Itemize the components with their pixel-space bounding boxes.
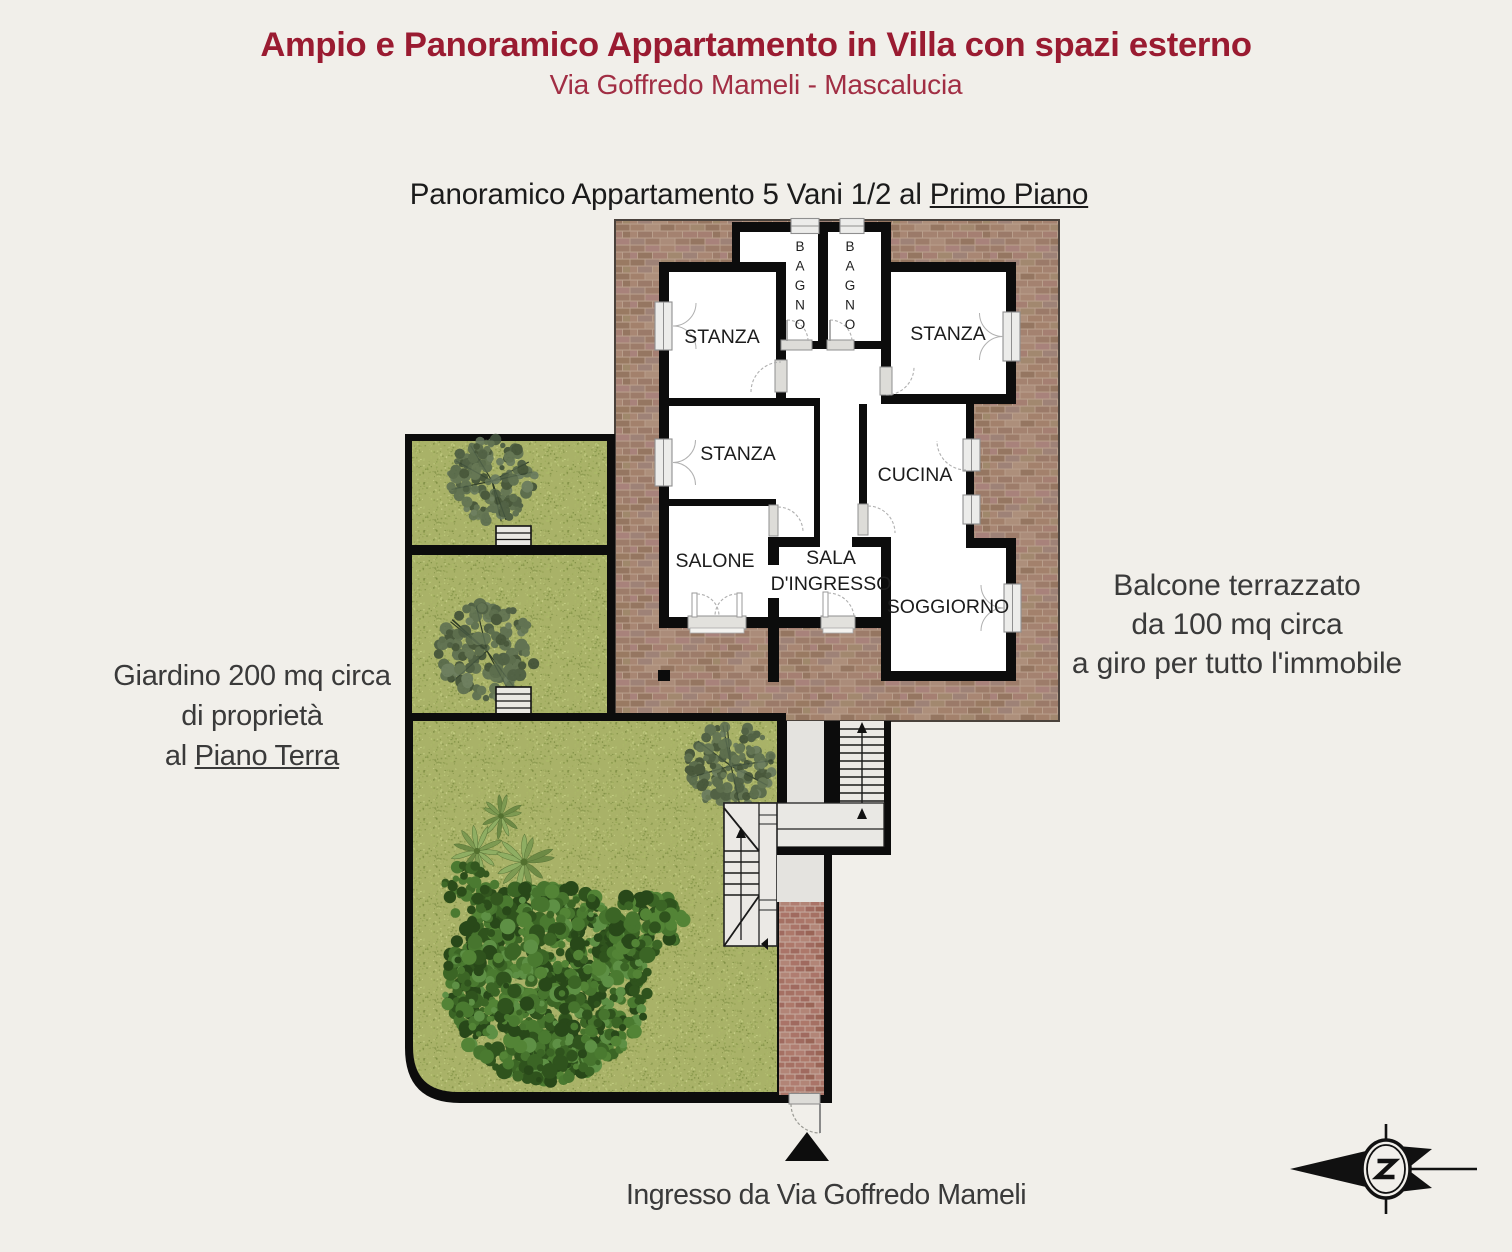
svg-text:STANZA: STANZA (684, 326, 759, 348)
svg-text:A: A (795, 259, 804, 274)
svg-text:SALONE: SALONE (675, 550, 754, 572)
svg-text:G: G (795, 278, 806, 293)
svg-text:STANZA: STANZA (700, 443, 775, 465)
svg-text:STANZA: STANZA (910, 323, 985, 345)
svg-text:O: O (845, 317, 856, 332)
svg-text:A: A (845, 259, 854, 274)
svg-text:CUCINA: CUCINA (878, 464, 953, 486)
svg-text:D'INGRESSO: D'INGRESSO (771, 573, 892, 595)
svg-text:N: N (845, 298, 855, 313)
svg-text:O: O (795, 317, 806, 332)
svg-text:SOGGIORNO: SOGGIORNO (887, 596, 1009, 618)
svg-text:SALA: SALA (806, 547, 856, 569)
svg-text:G: G (845, 278, 856, 293)
svg-text:N: N (795, 298, 805, 313)
svg-text:B: B (845, 239, 854, 254)
svg-text:B: B (795, 239, 804, 254)
